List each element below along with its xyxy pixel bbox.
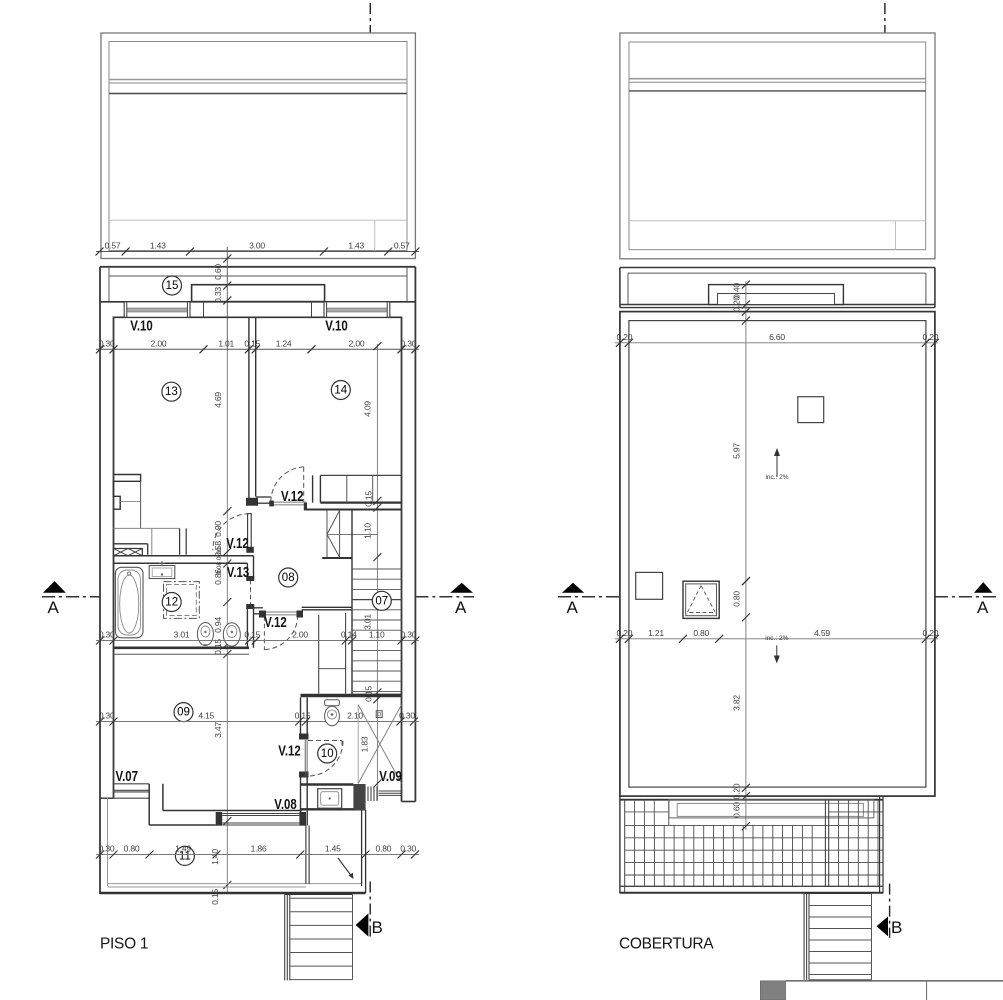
svg-text:0.20: 0.20 xyxy=(617,332,633,342)
svg-text:1.43: 1.43 xyxy=(150,241,166,251)
svg-text:0.60: 0.60 xyxy=(732,802,742,818)
svg-text:1.24: 1.24 xyxy=(276,338,292,348)
svg-text:2.00: 2.00 xyxy=(292,630,308,640)
svg-text:1.21: 1.21 xyxy=(648,628,664,638)
svg-text:1.43: 1.43 xyxy=(348,241,364,251)
svg-text:10: 10 xyxy=(321,748,334,760)
svg-text:1.01: 1.01 xyxy=(218,338,234,348)
svg-text:0.57: 0.57 xyxy=(105,241,121,251)
svg-text:0.80: 0.80 xyxy=(693,628,709,638)
svg-text:0.15: 0.15 xyxy=(244,630,260,640)
svg-text:0.60: 0.60 xyxy=(213,264,223,280)
svg-text:0.30: 0.30 xyxy=(99,630,115,640)
svg-text:1.49: 1.49 xyxy=(175,844,191,854)
svg-text:09: 09 xyxy=(177,707,190,719)
svg-text:0.86: 0.86 xyxy=(213,569,223,585)
svg-text:V.12: V.12 xyxy=(281,489,304,505)
svg-text:2.10: 2.10 xyxy=(347,711,363,721)
svg-text:V.07: V.07 xyxy=(116,769,139,785)
svg-text:6.60: 6.60 xyxy=(769,332,785,342)
svg-text:0.20: 0.20 xyxy=(923,332,939,342)
svg-text:13: 13 xyxy=(165,386,178,398)
svg-text:4.15: 4.15 xyxy=(198,711,214,721)
svg-text:14: 14 xyxy=(334,385,347,397)
svg-text:0.30: 0.30 xyxy=(401,630,417,640)
svg-text:V.10: V.10 xyxy=(325,319,348,335)
svg-text:3.01: 3.01 xyxy=(363,614,373,630)
svg-text:V.10: V.10 xyxy=(130,319,153,335)
svg-text:3.82: 3.82 xyxy=(732,695,742,711)
svg-text:1.83: 1.83 xyxy=(360,736,370,752)
svg-text:0.20: 0.20 xyxy=(732,296,742,312)
svg-text:5.97: 5.97 xyxy=(732,443,742,459)
svg-text:V.09: V.09 xyxy=(379,769,402,785)
svg-text:0.90: 0.90 xyxy=(213,521,223,537)
svg-text:3.00: 3.00 xyxy=(249,241,265,251)
svg-text:0.30: 0.30 xyxy=(400,844,416,854)
svg-text:0.14: 0.14 xyxy=(341,630,357,640)
svg-text:0.30: 0.30 xyxy=(399,711,415,721)
svg-text:0.30: 0.30 xyxy=(99,338,115,348)
svg-text:1.10: 1.10 xyxy=(369,630,385,640)
svg-text:1.45: 1.45 xyxy=(325,844,341,854)
svg-text:0.20: 0.20 xyxy=(923,628,939,638)
svg-text:A: A xyxy=(977,598,989,617)
svg-text:inc.: 2%: inc.: 2% xyxy=(765,635,788,642)
svg-text:0.57: 0.57 xyxy=(394,241,410,251)
svg-text:2.00: 2.00 xyxy=(349,338,365,348)
svg-text:0.80: 0.80 xyxy=(732,591,742,607)
svg-text:1.10: 1.10 xyxy=(363,523,373,539)
svg-text:PISO 1: PISO 1 xyxy=(100,935,148,952)
svg-text:inc.: 2%: inc.: 2% xyxy=(765,474,788,481)
svg-text:0.15: 0.15 xyxy=(210,889,220,905)
svg-text:0.15: 0.15 xyxy=(295,711,311,721)
svg-text:4.59: 4.59 xyxy=(814,628,830,638)
svg-text:0.94: 0.94 xyxy=(213,617,223,633)
svg-text:07: 07 xyxy=(375,595,388,607)
svg-text:1.86: 1.86 xyxy=(251,844,267,854)
svg-text:COBERTURA: COBERTURA xyxy=(619,935,714,952)
svg-text:12: 12 xyxy=(165,597,178,609)
svg-text:4.69: 4.69 xyxy=(213,392,223,408)
svg-text:0.30: 0.30 xyxy=(99,844,115,854)
svg-text:V.08: V.08 xyxy=(274,797,297,813)
svg-text:V.12: V.12 xyxy=(226,536,249,552)
svg-text:A: A xyxy=(567,598,579,617)
svg-text:0.80: 0.80 xyxy=(376,844,392,854)
svg-text:B: B xyxy=(891,918,902,937)
svg-text:A: A xyxy=(455,598,467,617)
svg-text:3.47: 3.47 xyxy=(213,722,223,738)
svg-text:2.00: 2.00 xyxy=(151,338,167,348)
svg-text:0.80: 0.80 xyxy=(124,844,140,854)
svg-text:4.09: 4.09 xyxy=(363,401,373,417)
svg-text:0.33: 0.33 xyxy=(213,287,223,303)
svg-text:V.13: V.13 xyxy=(227,565,250,581)
svg-text:A: A xyxy=(48,598,60,617)
svg-text:V.12: V.12 xyxy=(278,744,301,760)
svg-text:0.15: 0.15 xyxy=(364,491,374,507)
svg-text:0.15: 0.15 xyxy=(244,338,260,348)
svg-text:0.20: 0.20 xyxy=(617,628,633,638)
svg-text:3.01: 3.01 xyxy=(174,630,190,640)
svg-text:08: 08 xyxy=(282,572,295,584)
svg-text:15: 15 xyxy=(166,280,179,292)
svg-text:0.30: 0.30 xyxy=(99,711,115,721)
svg-text:V.12: V.12 xyxy=(264,615,287,631)
svg-text:0.20: 0.20 xyxy=(732,783,742,799)
svg-text:B: B xyxy=(372,918,383,937)
svg-text:0.30: 0.30 xyxy=(401,338,417,348)
